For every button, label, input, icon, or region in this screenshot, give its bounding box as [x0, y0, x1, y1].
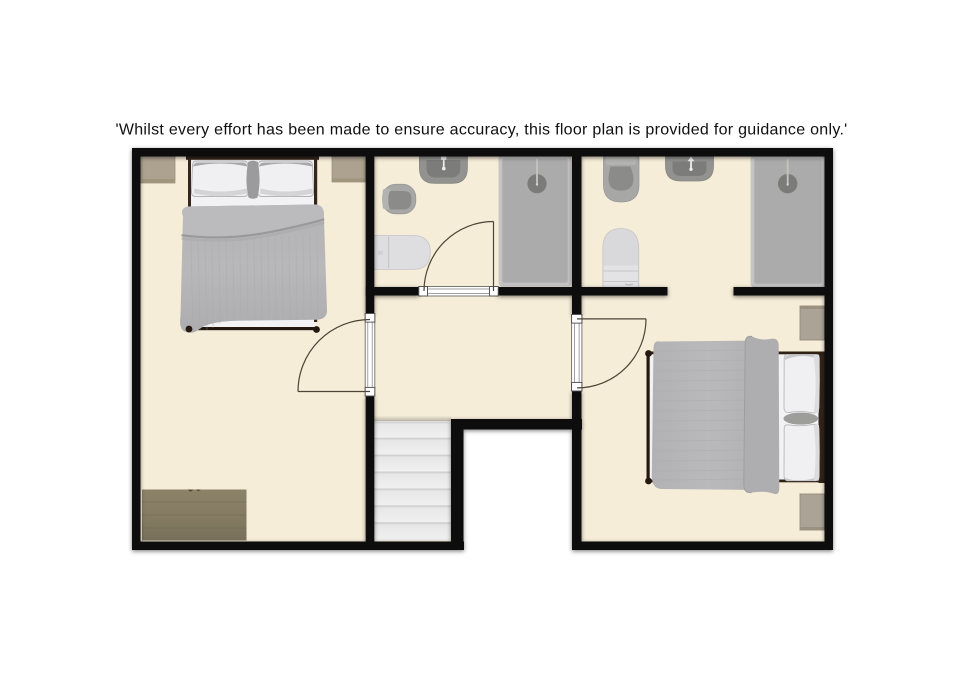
svg-text:'Whilst every effort has been: 'Whilst every effort has been made to en… — [115, 122, 847, 139]
